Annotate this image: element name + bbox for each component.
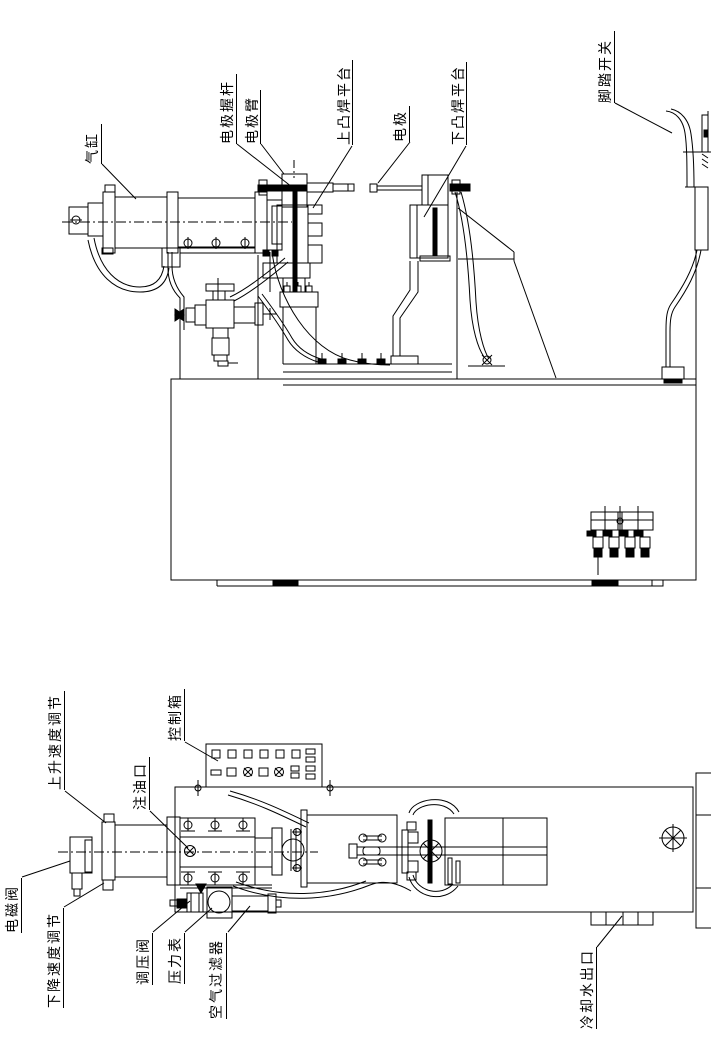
valve-block-plan [180, 810, 307, 887]
cooling-water-fittings [591, 824, 687, 925]
machine-frame [258, 252, 452, 379]
label-air-cylinder: 气缸 [83, 124, 102, 164]
air-hoses [88, 238, 390, 379]
engineering-drawing [0, 0, 711, 1063]
label-control-box: 控制箱 [166, 689, 185, 741]
control-box-panel [195, 744, 333, 796]
label-oil-fill-port: 注油口 [131, 757, 150, 810]
label-solenoid-valve: 电磁阀 [4, 878, 22, 933]
side-view [62, 109, 711, 586]
lower-platform-assembly [370, 175, 556, 379]
label-air-filter: 空气过滤器 [207, 933, 227, 1019]
label-cooling-water-outlet: 冷却水出口 [578, 947, 597, 1029]
label-electrode: 电极 [392, 106, 410, 142]
label-electrode-arm: 电极臂 [244, 90, 261, 144]
label-upper-projection-platform: 上凸焊平台 [336, 60, 353, 145]
label-lower-projection-platform: 下凸焊平台 [450, 62, 467, 145]
air-treatment-unit [170, 884, 281, 918]
top-view [58, 744, 711, 928]
valve-manifold [587, 506, 653, 575]
center-assembly-plan [307, 800, 547, 897]
air-cylinder-assembly [62, 185, 292, 267]
cylinder-plan [70, 814, 180, 896]
side-panel-plan [696, 773, 711, 928]
foot-pedal [662, 109, 711, 383]
label-rise-speed-adjust: 上升速度调节 [47, 691, 65, 790]
label-pressure-regulator-valve: 调压阀 [134, 933, 153, 985]
label-pressure-gauge: 压力表 [166, 933, 185, 984]
pneumatic-valve [175, 278, 277, 366]
drawing-page: 气缸 电极握杆 电极臂 上凸焊平台 电极 下凸焊平台 脚踏开关 上升速度调节 控… [0, 0, 711, 1063]
label-electrode-holder-rod: 电极握杆 [219, 74, 237, 144]
label-descent-speed-adjust: 下降速度调节 [45, 908, 64, 1008]
leader-lines [22, 103, 672, 947]
label-foot-switch: 脚踏开关 [597, 31, 615, 103]
